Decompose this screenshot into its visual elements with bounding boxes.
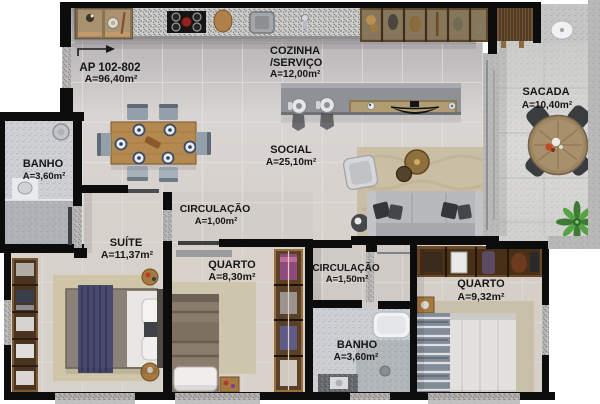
svg-text:BANHO: BANHO (23, 158, 64, 170)
svg-text:A=8,30m²: A=8,30m² (209, 271, 256, 283)
svg-text:QUARTO: QUARTO (457, 278, 505, 290)
svg-text:A=1,00m²: A=1,00m² (195, 216, 238, 227)
svg-text:A=12,00m²: A=12,00m² (270, 69, 321, 80)
svg-text:SUÍTE: SUÍTE (110, 236, 142, 249)
svg-text:CIRCULAÇÃO: CIRCULAÇÃO (180, 202, 251, 215)
svg-text:SOCIAL: SOCIAL (270, 144, 312, 156)
svg-text:QUARTO: QUARTO (208, 259, 256, 271)
svg-text:BANHO: BANHO (337, 339, 378, 351)
svg-text:A=96,40m²: A=96,40m² (85, 73, 138, 85)
svg-text:A=10,40m²: A=10,40m² (522, 100, 573, 111)
svg-text:A=11,37m²: A=11,37m² (101, 249, 154, 261)
svg-text:SACADA: SACADA (522, 86, 569, 98)
svg-text:/SERVIÇO: /SERVIÇO (270, 57, 323, 69)
svg-text:COZINHA: COZINHA (270, 45, 320, 57)
svg-text:A=25,10m²: A=25,10m² (266, 157, 317, 168)
svg-text:A=3,60m²: A=3,60m² (334, 352, 379, 363)
svg-text:A=3,60m²: A=3,60m² (23, 171, 66, 182)
svg-text:A=9,32m²: A=9,32m² (458, 291, 505, 303)
svg-text:CIRCULAÇÃO: CIRCULAÇÃO (312, 261, 379, 274)
svg-text:A=1,50m²: A=1,50m² (326, 274, 369, 285)
